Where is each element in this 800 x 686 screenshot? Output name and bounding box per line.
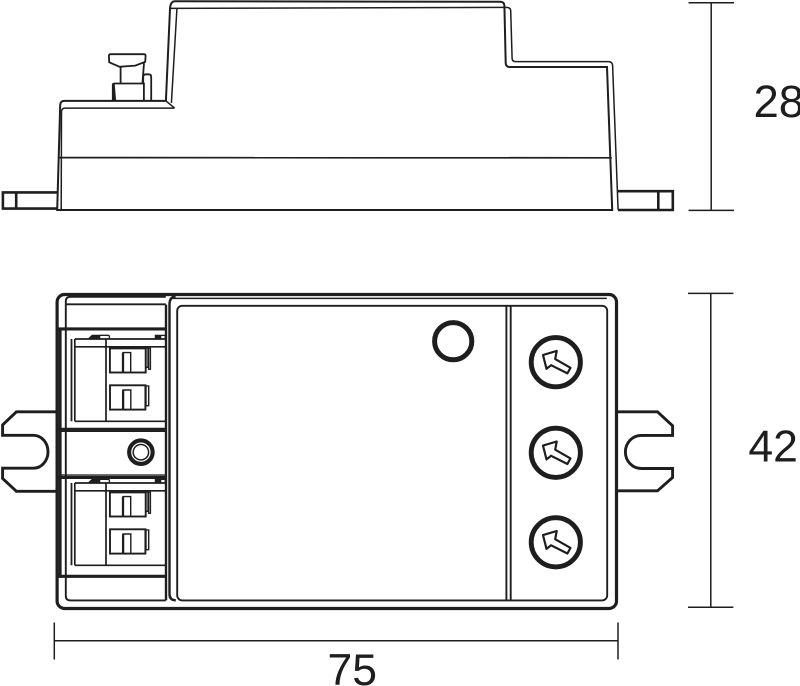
svg-text:42: 42 (748, 423, 798, 472)
svg-text:28: 28 (754, 76, 800, 127)
svg-text:75: 75 (328, 646, 378, 686)
